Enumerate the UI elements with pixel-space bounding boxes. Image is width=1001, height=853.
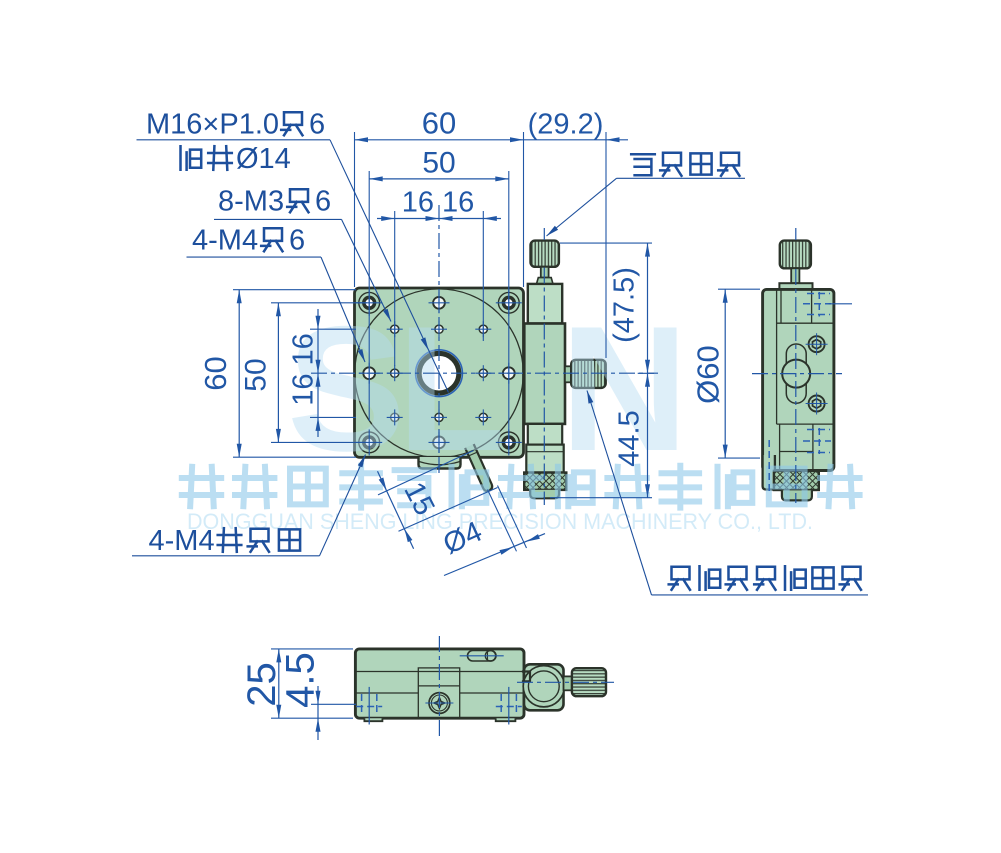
svg-text:60: 60 — [198, 356, 233, 390]
svg-text:(29.2): (29.2) — [528, 109, 604, 141]
svg-text:Ø14: Ø14 — [236, 143, 291, 175]
svg-text:Ø60: Ø60 — [691, 345, 726, 404]
svg-text:60: 60 — [422, 106, 456, 141]
svg-text:44.5: 44.5 — [614, 410, 646, 466]
svg-text:6: 6 — [309, 109, 325, 141]
svg-text:M16×P1.0: M16×P1.0 — [146, 109, 279, 141]
svg-text:16 16: 16 16 — [402, 187, 475, 219]
svg-text:50: 50 — [240, 358, 273, 391]
svg-text:16 16: 16 16 — [288, 333, 320, 406]
svg-text:50: 50 — [422, 147, 455, 180]
svg-text:6: 6 — [289, 225, 305, 257]
svg-text:4-M4: 4-M4 — [192, 225, 258, 257]
svg-text:6: 6 — [315, 186, 331, 218]
svg-text:4.5: 4.5 — [279, 652, 323, 708]
svg-text:8-M3: 8-M3 — [218, 186, 284, 218]
svg-text:L: L — [397, 289, 506, 488]
svg-text:(47.5): (47.5) — [609, 267, 641, 343]
svg-text:4-M4: 4-M4 — [149, 525, 215, 557]
svg-text:25: 25 — [240, 662, 284, 707]
